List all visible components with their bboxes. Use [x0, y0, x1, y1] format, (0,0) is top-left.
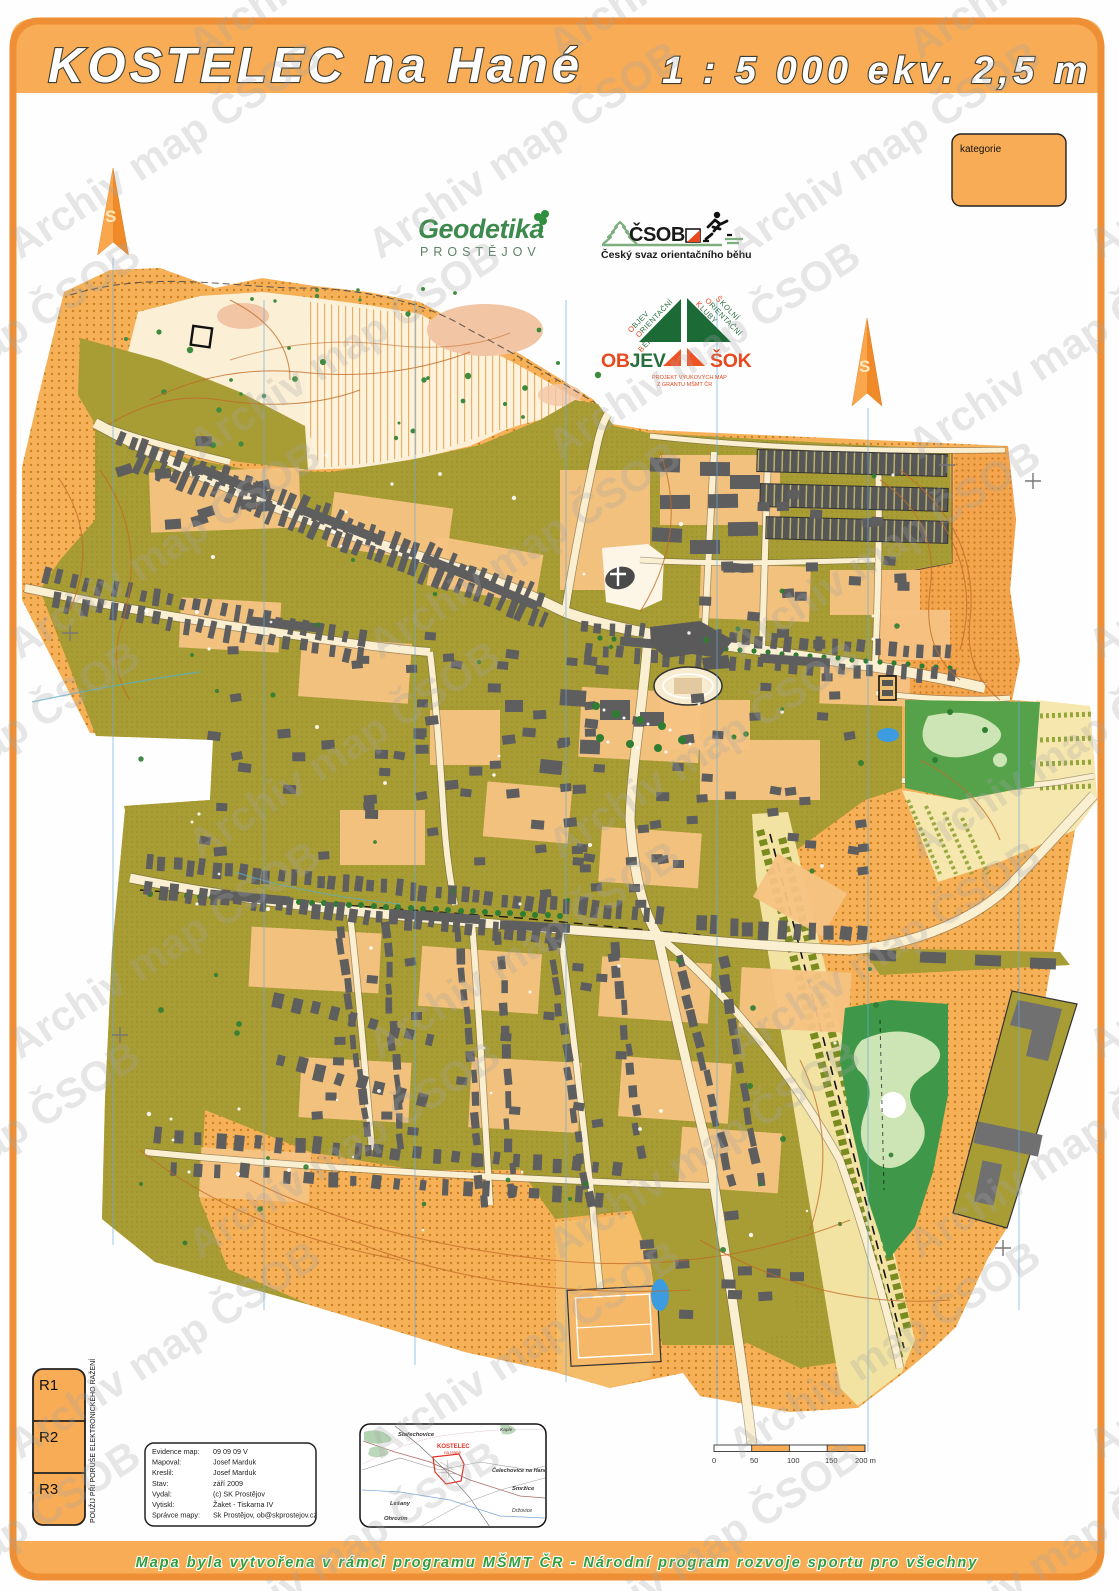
svg-text:09 09 09 V: 09 09 09 V	[213, 1447, 248, 1456]
svg-text:Josef Marduk: Josef Marduk	[213, 1468, 257, 1477]
svg-text:kategorie: kategorie	[960, 144, 1002, 155]
svg-text:Kaple: Kaple	[500, 1427, 513, 1433]
svg-text:Mapa byla vytvořena v rámci pr: Mapa byla vytvořena v rámci programu MŠM…	[136, 1553, 979, 1571]
svg-text:Vytiskl:: Vytiskl:	[152, 1500, 175, 1509]
svg-text:Český svaz orientačního běhu: Český svaz orientačního běhu	[601, 248, 752, 261]
svg-text:Evidence map:: Evidence map:	[152, 1447, 200, 1456]
svg-text:Sk Prostějov, ob@skprostejov.c: Sk Prostějov, ob@skprostejov.cz	[213, 1511, 318, 1520]
svg-text:0: 0	[712, 1456, 716, 1465]
svg-text:Správce mapy:: Správce mapy:	[152, 1511, 200, 1520]
svg-text:Držovice: Držovice	[512, 1508, 532, 1514]
svg-text:Josef Marduk: Josef Marduk	[213, 1458, 257, 1467]
svg-text:Mapoval:: Mapoval:	[152, 1458, 181, 1467]
svg-text:Smržice: Smržice	[512, 1486, 535, 1492]
svg-text:ČSOB: ČSOB	[629, 222, 685, 246]
svg-text:Kreslil:: Kreslil:	[152, 1468, 174, 1477]
svg-text:Stav:: Stav:	[152, 1479, 168, 1488]
svg-text:Vydal:: Vydal:	[152, 1489, 172, 1498]
svg-text:září 2009: září 2009	[213, 1479, 243, 1488]
svg-text:S: S	[859, 357, 870, 376]
svg-text:(c) SK Prostějov: (c) SK Prostějov	[213, 1489, 265, 1498]
svg-text:Žaket - Tiskarna IV: Žaket - Tiskarna IV	[213, 1500, 274, 1509]
